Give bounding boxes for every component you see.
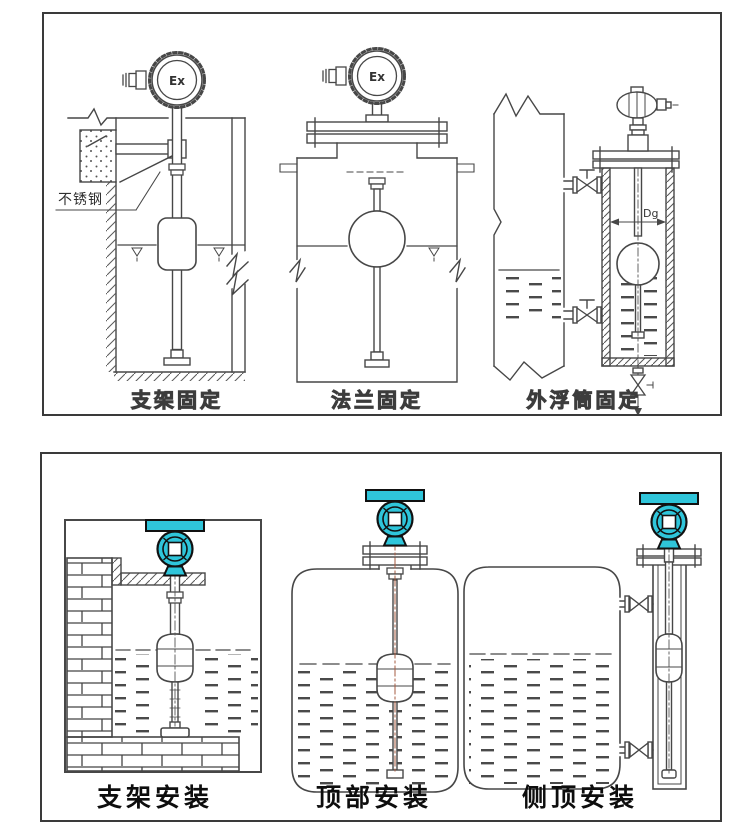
diagram-bracket-installation: 支架安装 [65, 520, 261, 812]
liquid [197, 654, 258, 734]
bracket-post [112, 558, 121, 585]
top-panel-fixing-methods: Ex 不锈钢 支架固定 [42, 12, 722, 416]
top-panel-drawing: Ex 不锈钢 支架固定 [44, 14, 720, 414]
label-top-installation: 顶部安装 [316, 783, 432, 812]
wall-mount-plate [80, 130, 116, 182]
teal-transmitter-head [146, 520, 204, 576]
bottom-weight [161, 728, 189, 737]
upper-connection-valve [620, 596, 653, 612]
liquid [298, 670, 450, 786]
ex-mark: Ex [369, 70, 385, 84]
bottom-panel-drawing: 支架安装 顶部安装 [42, 454, 720, 820]
bottom-panel-installation-styles: 支架安装 顶部安装 [40, 452, 722, 822]
tank-torn-bottom [494, 362, 564, 380]
diagram-side-top-installation: 侧顶安装 [464, 493, 701, 812]
material-note: 不锈钢 [58, 192, 103, 208]
diagram-bracket-fixing: Ex 不锈钢 支架固定 [56, 53, 250, 413]
ex-transmitter-head: Ex [323, 49, 405, 104]
teal-transmitter-head [366, 490, 424, 546]
label-flange-fixing: 法兰固定 [331, 388, 423, 412]
label-side-top-installation: 侧顶安装 [522, 783, 638, 812]
label-bracket-fixing: 支架固定 [131, 388, 223, 412]
dg-label: Dg [643, 207, 658, 220]
lower-isolation-valve [564, 300, 602, 323]
diagram-external-chamber-fixing: Dg 外浮筒固定 [494, 87, 679, 414]
label-external-chamber-fixing: 外浮筒固定 [527, 388, 642, 412]
label-bracket-installation: 支架安装 [97, 783, 213, 812]
lower-connection-valve [620, 742, 653, 758]
liquid [469, 659, 615, 784]
compact-transmitter-head [617, 87, 678, 151]
ex-transmitter-head: Ex [123, 53, 205, 108]
float-body [158, 218, 196, 270]
bracket-shelf [121, 573, 205, 585]
teal-transmitter-head [640, 493, 698, 549]
diagram-top-installation: 顶部安装 [292, 490, 458, 812]
mounting-flange [307, 115, 447, 147]
diagram-flange-fixing: Ex 法兰固定 [280, 49, 474, 413]
brick-floor [67, 737, 239, 771]
upper-isolation-valve [564, 170, 602, 193]
float-ball [349, 211, 405, 267]
brick-wall [67, 558, 112, 737]
tank-torn-top [494, 94, 564, 116]
tank-liquid [497, 274, 561, 320]
ex-mark: Ex [169, 74, 185, 88]
liquid [115, 654, 153, 734]
